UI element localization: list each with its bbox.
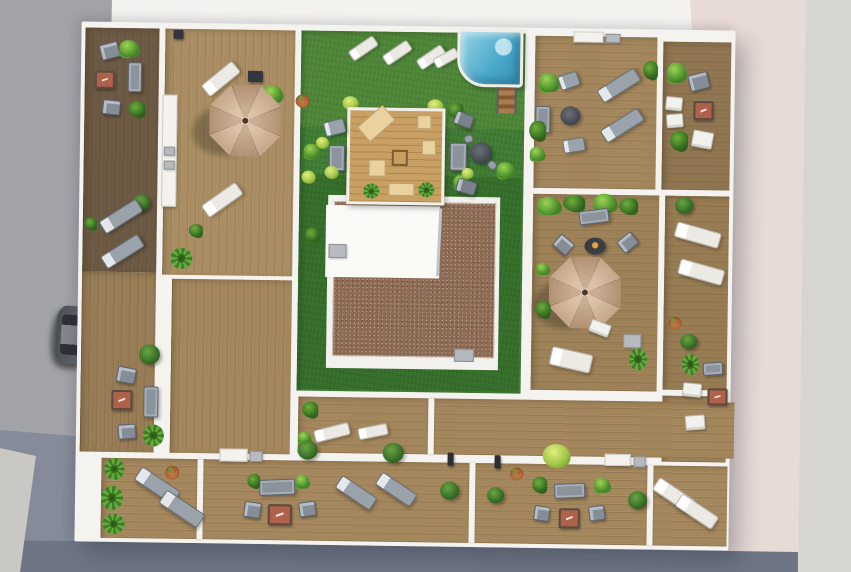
shrub-dark xyxy=(563,195,585,211)
shrub-dark xyxy=(85,218,97,230)
armchair xyxy=(243,501,262,519)
counter-gray xyxy=(623,334,641,348)
shrub-dark xyxy=(643,61,658,79)
fire-table-red xyxy=(693,101,713,120)
shrub-dark xyxy=(670,131,688,151)
roof-vent xyxy=(454,349,474,362)
shrub-dark xyxy=(305,228,320,242)
counter-gray xyxy=(328,244,346,258)
deck-mat xyxy=(388,183,414,196)
shrub xyxy=(530,147,545,161)
pool-steps xyxy=(496,87,516,113)
shrub-dark xyxy=(532,477,547,493)
topiary-ball xyxy=(383,443,404,463)
core-white-roof xyxy=(325,205,440,279)
counter-gray xyxy=(164,161,175,170)
shrub-dark xyxy=(619,198,638,214)
flower-pot xyxy=(295,94,309,107)
shrub-yellow xyxy=(324,166,338,179)
wall xyxy=(196,459,203,539)
counter-gray xyxy=(250,451,263,462)
deck-mat xyxy=(417,115,431,129)
sofa xyxy=(554,483,586,499)
terrace-left-mid-parasol xyxy=(170,279,292,455)
fire-bowl xyxy=(584,238,605,255)
flower-pot xyxy=(165,466,179,480)
shrub xyxy=(537,197,561,215)
shrub xyxy=(539,73,559,92)
fire-table-red xyxy=(95,71,115,89)
dark-box xyxy=(173,30,183,39)
topiary-ball xyxy=(487,487,504,503)
shrub xyxy=(295,474,309,488)
sofa xyxy=(702,362,723,376)
rooftop-building xyxy=(74,21,735,550)
topiary-ball xyxy=(680,334,697,349)
shrub xyxy=(667,63,686,83)
palm-plant xyxy=(363,183,379,198)
armchair xyxy=(102,99,121,116)
shrub xyxy=(536,263,549,275)
topiary-ball xyxy=(139,344,160,364)
fire-table-red xyxy=(111,390,132,410)
shrub-dark xyxy=(128,101,145,117)
planter-white xyxy=(220,448,248,461)
topiary-ball xyxy=(298,441,318,460)
topiary-ball xyxy=(628,491,647,509)
post-lamp xyxy=(494,455,500,468)
dark-box xyxy=(248,71,263,82)
shrub xyxy=(594,478,610,493)
flower-pot xyxy=(510,467,523,480)
shrub xyxy=(497,162,515,178)
shrub-yellow xyxy=(542,444,570,468)
fire-table-red xyxy=(559,508,580,528)
shrub-yellow xyxy=(462,168,474,179)
palm-plant xyxy=(418,182,434,197)
planter-white xyxy=(573,31,603,42)
wall xyxy=(646,465,653,545)
counter-gray xyxy=(605,34,620,43)
shrub-yellow xyxy=(301,171,315,184)
shrub-dark xyxy=(536,301,551,318)
wall xyxy=(468,463,475,543)
chair-white xyxy=(691,129,715,150)
armchair xyxy=(115,365,137,384)
round-table xyxy=(560,106,580,125)
shrub-dark xyxy=(529,121,546,141)
counter-gray xyxy=(633,456,645,467)
swimming-pool xyxy=(457,29,524,88)
topiary-ball xyxy=(440,482,459,500)
deck-mat xyxy=(369,159,386,176)
armchair xyxy=(117,423,136,439)
sofa xyxy=(128,62,142,92)
aerial-render-stage xyxy=(0,0,851,572)
sofa xyxy=(143,386,158,417)
armchair xyxy=(533,505,551,522)
flower-pot xyxy=(668,317,681,330)
chair-white xyxy=(682,382,702,398)
deck-mat xyxy=(422,140,436,155)
planter-white xyxy=(605,454,631,466)
chair-white xyxy=(665,96,683,112)
shrub-dark xyxy=(302,402,318,418)
palm-plant xyxy=(143,424,164,446)
fire-table-red xyxy=(268,504,292,525)
shrub-dark xyxy=(247,474,260,488)
terrace-top-left-dark xyxy=(82,28,159,273)
armchair xyxy=(298,501,317,518)
palm-plant xyxy=(103,514,125,534)
chair-white xyxy=(666,113,684,128)
deck-mat-framed xyxy=(392,150,408,166)
chair-white xyxy=(685,414,706,430)
post-lamp xyxy=(447,453,453,466)
shrub xyxy=(304,144,320,159)
sofa xyxy=(259,479,296,496)
shrub xyxy=(119,40,139,57)
counter-gray xyxy=(164,147,175,156)
wall xyxy=(428,398,435,454)
topiary-ball xyxy=(675,197,693,214)
sofa xyxy=(450,143,467,171)
shrub-dark xyxy=(189,224,203,237)
armchair xyxy=(588,505,606,522)
fire-table-red xyxy=(707,388,727,405)
